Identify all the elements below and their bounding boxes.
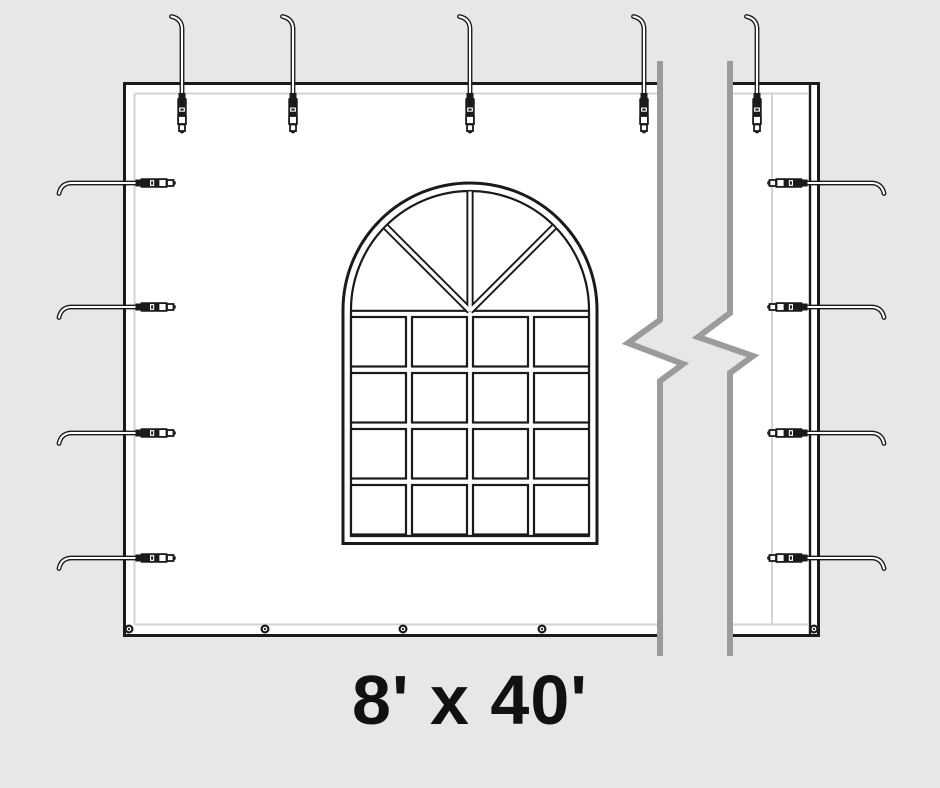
dimension-label: 8' x 40' [0, 660, 940, 740]
window-pane [473, 485, 528, 535]
window-pane [534, 485, 589, 535]
window-pane [412, 485, 467, 535]
window-pane [412, 317, 467, 367]
window-pane [473, 317, 528, 367]
diagram-canvas: 8' x 40' [0, 0, 940, 788]
window-pane [351, 429, 406, 479]
window-pane [412, 373, 467, 423]
window-pane [534, 373, 589, 423]
window-pane [351, 373, 406, 423]
cathedral-window [343, 183, 597, 544]
window-pane [534, 429, 589, 479]
window-pane [412, 429, 467, 479]
window-pane [534, 317, 589, 367]
window-pane [351, 485, 406, 535]
window-pane [473, 373, 528, 423]
window-pane [473, 429, 528, 479]
window-pane [351, 317, 406, 367]
